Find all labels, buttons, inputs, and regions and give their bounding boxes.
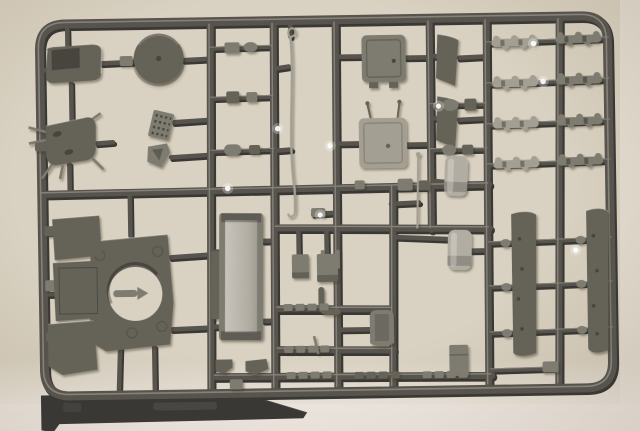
part-fuel-tank-b	[447, 230, 472, 270]
part-curved-box	[370, 310, 395, 347]
photo-stage	[0, 0, 640, 431]
part-mud-flap-a	[435, 34, 459, 86]
part-round-hatch	[132, 33, 185, 87]
part-hatch-a	[361, 35, 406, 89]
part-armor-panel-a	[52, 215, 102, 260]
part-armor-panel-c	[48, 321, 98, 376]
sprue-photo	[0, 0, 640, 431]
part-armor-panel-b	[53, 260, 104, 321]
part-fuel-tank-a	[444, 155, 468, 196]
